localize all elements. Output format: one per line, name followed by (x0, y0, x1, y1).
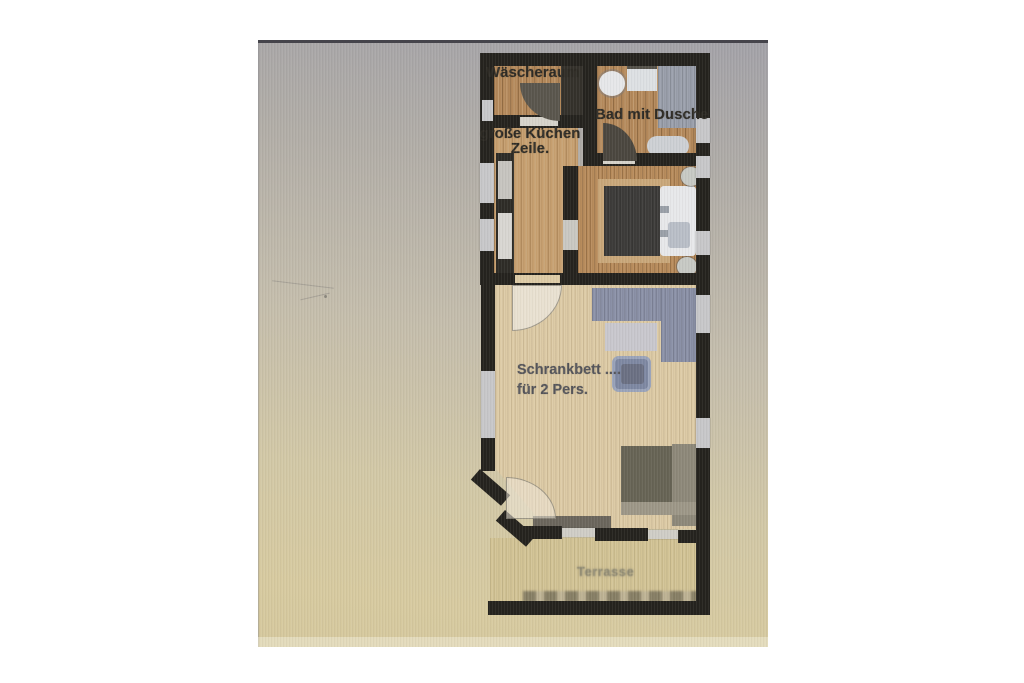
window-segment (696, 231, 710, 255)
sink-icon (599, 71, 625, 96)
kitchen-appliance (498, 213, 512, 259)
bathroom-label: Bad mit Dusche (595, 106, 708, 123)
window-segment (480, 163, 494, 203)
sofa (592, 288, 662, 321)
floor-plan-photo: Wäscheraum Bad mit Dusche große Küchen Z… (258, 40, 768, 647)
window-segment (696, 156, 710, 178)
wall-living-south-1 (518, 526, 562, 539)
door-gap-bedroom (563, 220, 578, 250)
window-segment (482, 100, 493, 121)
kitchen-appliance (498, 161, 512, 199)
wall-bottom-terrace (488, 601, 710, 615)
laundry-room-label: Wäscheraum (486, 64, 579, 81)
ottoman-cushion (621, 364, 644, 384)
folded-duvet (668, 222, 690, 248)
window-segment (481, 371, 495, 438)
photo-bottom-edge (258, 637, 768, 647)
floor-plan: Wäscheraum Bad mit Dusche große Küchen Z… (258, 43, 768, 647)
kitchen-label-line2: Zeile. (478, 141, 582, 156)
wall-bed-label-line2: für 2 Pers. (517, 380, 621, 400)
window-segment (562, 528, 595, 537)
window-segment (696, 418, 710, 448)
wall-bed-label: Schrankbett .... für 2 Pers. (517, 360, 621, 400)
cabinet-base (621, 502, 696, 515)
kitchen-label-line1: große Küchen (478, 126, 582, 141)
bed-mattress (604, 186, 660, 256)
door-gap-living (515, 275, 560, 283)
speck (324, 295, 327, 298)
window-segment (480, 219, 494, 251)
scratch-mark (272, 280, 334, 289)
terrace-label: Terrasse (577, 564, 634, 579)
pillow-gap (660, 206, 669, 213)
window-segment (648, 530, 678, 539)
wardrobe (621, 446, 672, 502)
coffee-table (605, 323, 657, 351)
page: Wäscheraum Bad mit Dusche große Küchen Z… (0, 0, 1024, 683)
kitchen-label: große Küchen Zeile. (478, 126, 582, 156)
window-segment (696, 295, 710, 333)
sofa-chaise (661, 288, 696, 362)
wall-living-south-2 (595, 528, 648, 541)
vanity-counter (627, 66, 657, 91)
wall-bed-label-line1: Schrankbett .... (517, 360, 621, 380)
